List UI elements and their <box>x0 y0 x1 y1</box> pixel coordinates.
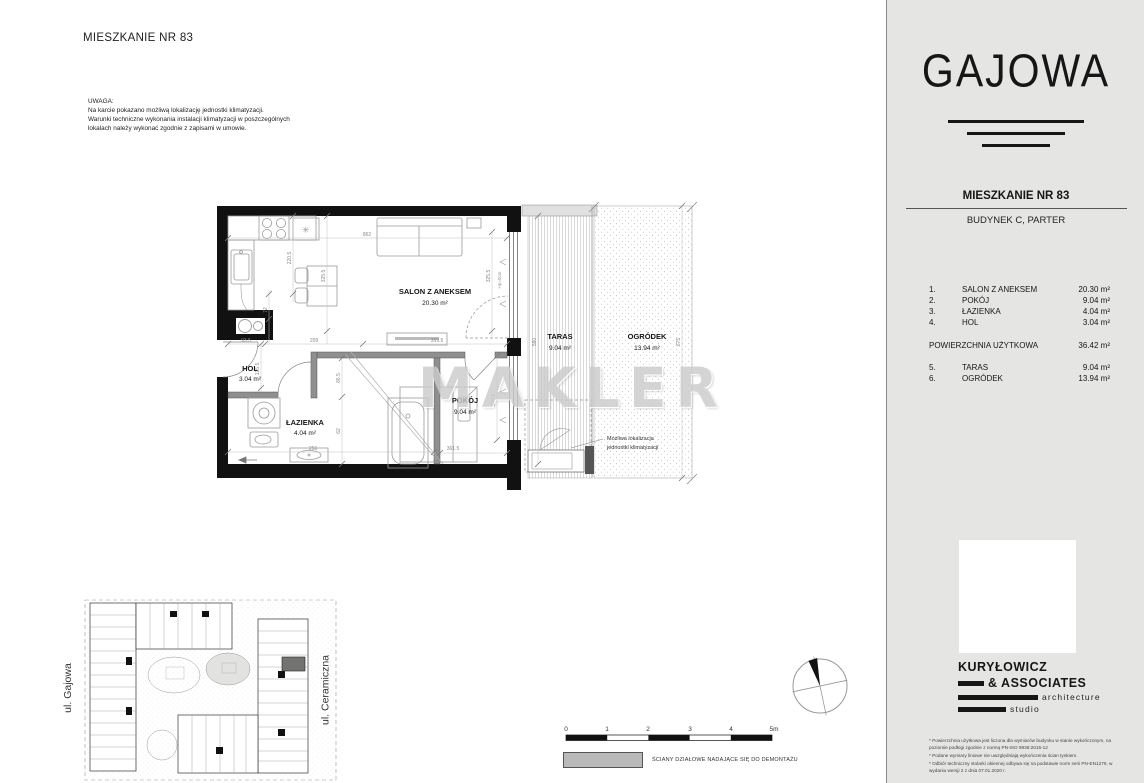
brand-ripple-line <box>967 132 1065 135</box>
svg-text:2: 2 <box>646 726 650 733</box>
demountable-wall-swatch <box>563 752 643 768</box>
svg-text:SALON Z ANEKSEM: SALON Z ANEKSEM <box>399 287 471 296</box>
svg-text:ŁAZIENKA: ŁAZIENKA <box>286 418 324 427</box>
brand-logo: GAJOWA <box>887 45 1144 98</box>
row-number: 5. <box>929 362 962 373</box>
svg-text:3.04 m²: 3.04 m² <box>239 376 262 383</box>
svg-text:1: 1 <box>605 726 609 733</box>
row-number: 6. <box>929 373 962 384</box>
building-floor-label: BUDYNEK C, PARTER <box>887 215 1144 226</box>
table-row: 5. TARAS 9.04 m² <box>929 362 1110 373</box>
balcony-door-swing <box>466 296 508 338</box>
floor-plan-drawing: ✳ <box>195 192 720 502</box>
architect-name: KURYŁOWICZ <box>958 660 1128 674</box>
svg-text:5m: 5m <box>769 726 778 733</box>
entry-arrow <box>239 457 257 463</box>
street-label-ceramiczna: ul. Ceramiczna <box>320 633 332 748</box>
svg-text:Możliwa lokalizacja: Możliwa lokalizacja <box>607 436 655 442</box>
footnote: * Odbiór techniczny stolarki okiennej od… <box>929 760 1121 774</box>
sofa <box>377 218 481 256</box>
svg-text:OGRÓDEK: OGRÓDEK <box>628 332 667 341</box>
svg-text:359.5: 359.5 <box>431 338 444 344</box>
row-area: 4.04 m² <box>1083 306 1110 317</box>
usable-area-total-row: POWIERZCHNIA UŻYTKOWA 36.42 m² <box>929 340 1110 351</box>
row-name: TARAS <box>962 362 1083 373</box>
architect-name: & ASSOCIATES <box>988 676 1086 690</box>
svg-text:HOL: HOL <box>242 364 258 373</box>
page-title: MIESZKANIE NR 83 <box>83 32 193 44</box>
svg-text:209: 209 <box>310 338 319 344</box>
svg-text:4.04 m²: 4.04 m² <box>294 430 317 437</box>
table-row: 1. SALON Z ANEKSEM 20.30 m² <box>929 284 1110 295</box>
svg-text:jednostki klimatyzacji: jednostki klimatyzacji <box>606 445 658 451</box>
svg-text:325.5: 325.5 <box>486 270 492 283</box>
table-row: 3. ŁAZIENKA 4.04 m² <box>929 306 1110 317</box>
row-number: 4. <box>929 317 962 328</box>
svg-text:220.5: 220.5 <box>287 252 293 265</box>
apartment-title: MIESZKANIE NR 83 <box>887 190 1144 202</box>
svg-text:361.5: 361.5 <box>447 446 460 452</box>
table-row: 6. OGRÓDEK 13.94 m² <box>929 373 1110 384</box>
row-area: 20.30 m² <box>1078 284 1110 295</box>
north-arrow-icon <box>788 650 852 722</box>
svg-text:580: 580 <box>532 338 538 347</box>
row-area: 13.94 m² <box>1078 373 1110 384</box>
row-area: 9.04 m² <box>1083 295 1110 306</box>
total-label: POWIERZCHNIA UŻYTKOWA <box>929 340 1078 351</box>
outdoor-area-rows: 5. TARAS 9.04 m² 6. OGRÓDEK 13.94 m² <box>929 362 1110 384</box>
notice-line: lokalach należy wykonać zgodnie z zapisa… <box>88 124 290 133</box>
architect-sub: studio <box>1010 704 1040 714</box>
svg-text:20.30 m²: 20.30 m² <box>422 300 448 307</box>
legend-label: ŚCIANY DZIAŁOWE NADAJĄCE SIĘ DO DEMONTAŻ… <box>652 757 798 763</box>
scale-bar: 0 1 2 3 4 5m <box>558 724 788 746</box>
row-area: 9.04 m² <box>1083 362 1110 373</box>
architect-sub: architecture <box>1042 692 1101 702</box>
row-name: ŁAZIENKA <box>962 306 1083 317</box>
svg-text:13.94 m²: 13.94 m² <box>634 345 660 352</box>
svg-text:862: 862 <box>363 232 372 238</box>
hvac-notice: UWAGA: Na karcie pokazano możliwą lokali… <box>88 97 290 133</box>
svg-text:93.5: 93.5 <box>241 338 251 344</box>
logo-bar <box>958 707 1006 712</box>
unit-location-highlight <box>282 657 305 671</box>
brand-ripple-line <box>948 120 1084 123</box>
total-area: 36.42 m² <box>1078 340 1110 351</box>
row-number: 1. <box>929 284 962 295</box>
svg-text:256: 256 <box>309 446 318 452</box>
svg-text:86.5: 86.5 <box>336 373 342 383</box>
table-row: 4. HOL 3.04 m² <box>929 317 1110 328</box>
row-number: 2. <box>929 295 962 306</box>
street-label-gajowa: ul. Gajowa <box>62 638 74 738</box>
svg-text:62: 62 <box>336 428 342 434</box>
table-row: 2. POKÓJ 9.04 m² <box>929 295 1110 306</box>
architect-logo: KURYŁOWICZ & ASSOCIATES architecture stu… <box>958 660 1128 714</box>
notice-heading: UWAGA: <box>88 97 290 106</box>
logo-bar <box>958 681 984 686</box>
shaft-fixtures <box>239 320 263 333</box>
brand-ripple-line <box>982 144 1050 147</box>
row-name: POKÓJ <box>962 295 1083 306</box>
ceiling-light-icon: ✳ <box>302 225 310 235</box>
site-plan-map <box>82 597 354 783</box>
notice-line: Warunki techniczne wykonania instalacji … <box>88 115 290 124</box>
logo-bar <box>958 695 1038 700</box>
svg-text:0: 0 <box>564 726 568 733</box>
footnote: * Podane wymiary liniowe nie uwzględniaj… <box>929 752 1121 759</box>
row-area: 3.04 m² <box>1083 317 1110 328</box>
blank-stamp-area <box>959 540 1076 653</box>
row-number: 3. <box>929 306 962 317</box>
svg-text:325.5: 325.5 <box>321 270 327 283</box>
room-area-table: 1. SALON Z ANEKSEM 20.30 m² 2. POKÓJ 9.0… <box>929 284 1110 384</box>
svg-text:3: 3 <box>688 726 692 733</box>
svg-text:Hp=0cm: Hp=0cm <box>497 271 502 288</box>
svg-text:TARAS: TARAS <box>547 332 572 341</box>
svg-text:4: 4 <box>729 726 733 733</box>
agency-watermark: MAKLER <box>418 356 727 420</box>
svg-text:675: 675 <box>676 338 682 347</box>
svg-text:9.04 m²: 9.04 m² <box>549 345 572 352</box>
dining-set <box>295 266 337 306</box>
footnotes: * Powierzchnia użytkowa jest liczona dla… <box>929 737 1121 775</box>
row-name: HOL <box>962 317 1083 328</box>
row-name: OGRÓDEK <box>962 373 1078 384</box>
row-name: SALON Z ANEKSEM <box>962 284 1078 295</box>
notice-line: Na karcie pokazano możliwą lokalizację j… <box>88 106 290 115</box>
title-block-sidebar: GAJOWA MIESZKANIE NR 83 BUDYNEK C, PARTE… <box>886 0 1144 783</box>
footnote: * Powierzchnia użytkowa jest liczona dla… <box>929 737 1121 751</box>
svg-text:72: 72 <box>263 307 269 313</box>
title-divider <box>906 208 1127 209</box>
